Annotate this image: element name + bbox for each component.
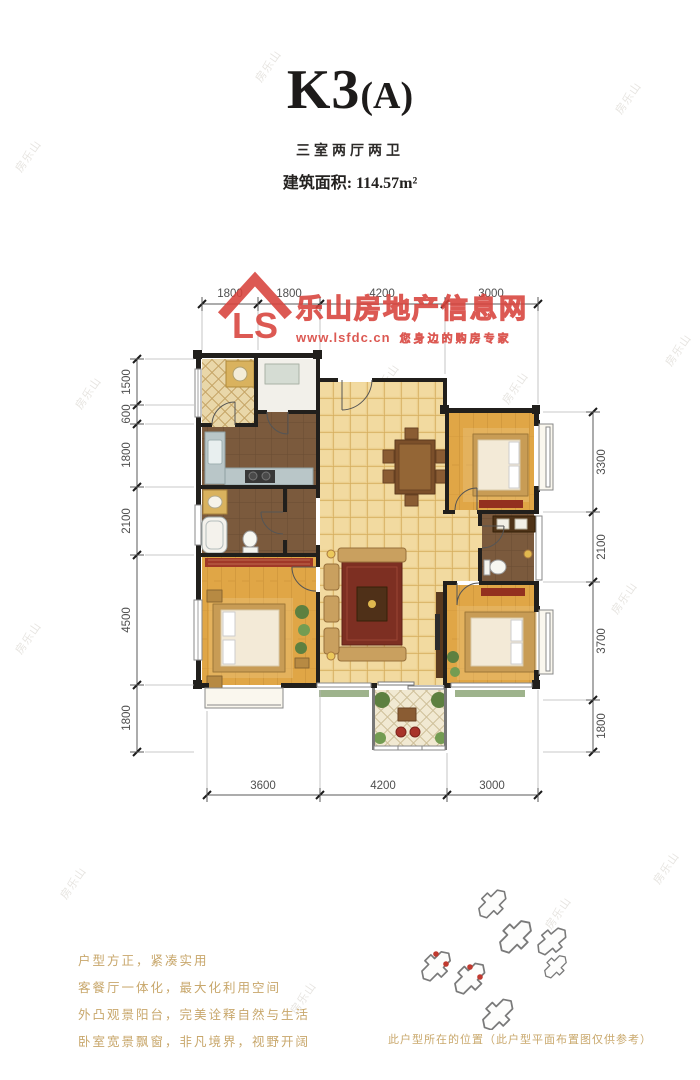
selling-point: 卧室宽景飘窗，非凡境界，视野开阔 [78,1029,310,1056]
dim-bottom-1: 3600 [250,780,276,792]
dim-right-1: 3300 [596,449,608,475]
dim-left-5: 4500 [121,607,133,633]
watermark-tile: 房乐山 [661,331,695,370]
brand-logo-icon: LS [218,270,292,346]
selling-point: 户型方正，紧凑实用 [78,948,310,975]
unit-title-paren: (A) [360,75,413,117]
selling-point: 外凸观景阳台，完美诠释自然与生活 [78,1002,310,1029]
site-plan-buildings [415,884,572,1030]
dim-left-2: 600 [121,404,133,423]
watermark-tile: 房乐山 [56,864,90,903]
dim-right-4: 1800 [596,713,608,739]
unit-area: 建筑面积: 114.57m² [0,169,700,193]
selling-point: 客餐厅一体化，最大化利用空间 [78,975,310,1002]
dim-right-2: 2100 [596,534,608,560]
dim-left-3: 1800 [121,442,133,468]
brand-site-url: www.lsfdc.cn [296,330,391,345]
header: K3(A) 三室两厅两卫 建筑面积: 114.57m² [0,62,700,193]
site-plan-caption: 此户型所在的位置（此户型平面布置图仅供参考） [380,1031,660,1047]
brand-site-name: 乐山房地产信息网 [296,287,528,326]
brand-monogram: LS [232,305,278,346]
dim-left-4: 2100 [121,508,133,534]
watermark-tile: 房乐山 [11,619,45,658]
selling-points: 户型方正，紧凑实用 客餐厅一体化，最大化利用空间 外凸观景阳台，完美诠释自然与生… [78,948,310,1056]
dim-bottom-3: 3000 [479,780,505,792]
brand-text: 乐山房地产信息网 www.lsfdc.cn 您身边的购房专家 [296,287,528,346]
dim-bottom-2: 4200 [370,780,396,792]
unit-title: K3(A) [0,62,700,118]
brand-watermark: LS 乐山房地产信息网 www.lsfdc.cn 您身边的购房专家 [218,270,528,346]
dim-left-1: 1500 [121,369,133,395]
unit-subtitle: 三室两厅两卫 [0,140,700,160]
brand-tagline: 您身边的购房专家 [400,330,512,346]
unit-title-main: K3 [287,59,361,121]
dim-left-6: 1800 [121,705,133,731]
site-plan [398,872,663,1030]
floor-plan: 1800 1800 4200 3000 3600 4200 3000 1500 … [95,262,635,832]
dim-right-3: 3700 [596,628,608,654]
floorplan-page: 房乐山 房乐山 房乐山 房乐山 房乐山 房乐山 房乐山 房乐山 房乐山 房乐山 … [0,0,700,1080]
